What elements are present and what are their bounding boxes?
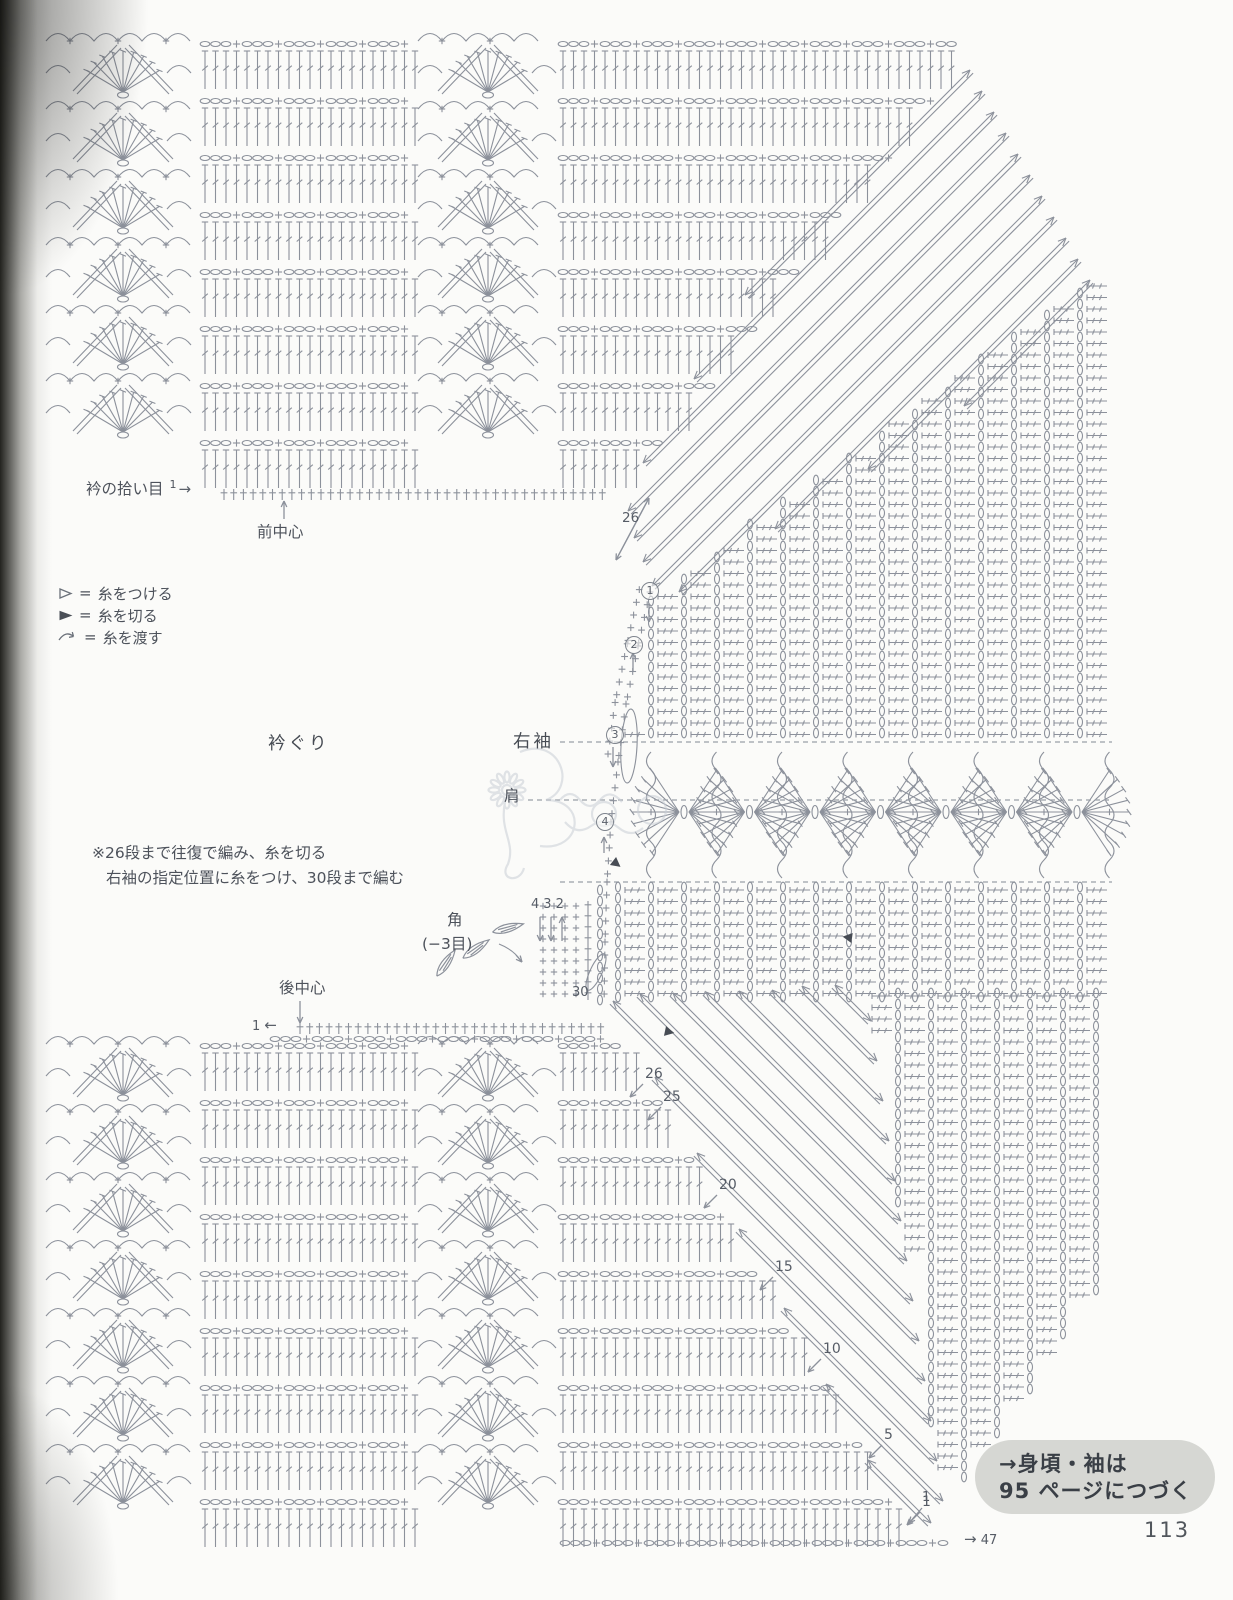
legend: = 糸をつける = 糸を切る = 糸を渡す — [58, 582, 173, 648]
step-row-number: 25 — [663, 1089, 681, 1105]
carry-yarn-icon — [58, 630, 78, 644]
equals-sign: = — [79, 606, 92, 624]
collar-pickup-text: 衿の拾い目 — [86, 480, 164, 498]
front-center-label: 前中心 — [257, 520, 304, 542]
step-row-number: 20 — [719, 1177, 737, 1193]
back-center-label: 後中心 — [279, 976, 326, 998]
step-row-number: 10 — [823, 1341, 841, 1357]
step-row-number: 15 — [775, 1259, 793, 1275]
continuation-line-2: 95 ページにつづく — [999, 1478, 1215, 1505]
circled-step-4: 4 — [596, 813, 614, 831]
legend-item-cut-yarn: = 糸を切る — [58, 604, 173, 626]
shoulder-label: 肩 — [504, 784, 520, 806]
circled-step-2: 2 — [625, 636, 643, 654]
crochet-chart-diagram — [0, 0, 1233, 1600]
note-line-2: 右袖の指定位置に糸をつけ、30段まで編む — [106, 866, 404, 888]
left-arrow-icon: ← — [264, 1016, 277, 1034]
back-center-row-marker: 1 ← — [252, 1016, 277, 1034]
watermark-logo — [489, 749, 667, 879]
right-arrow-icon: → — [964, 1530, 977, 1548]
circled-step-1: 1 — [641, 582, 659, 600]
right-arrow-icon: → — [179, 480, 192, 498]
bottom-stitch-count: → 47 — [964, 1530, 997, 1548]
corner-arrow-digits: 432 — [531, 897, 568, 912]
scanned-page: 衿の拾い目1→ 前中心 = 糸をつける = 糸を切る = 糸を渡す 衿ぐり 右袖… — [0, 0, 1233, 1600]
equals-sign: = — [79, 584, 92, 602]
collar-pickup-label: 衿の拾い目1→ — [86, 477, 191, 499]
legend-label: 糸を渡す — [103, 627, 163, 648]
collar-pickup-row-number: 1 — [170, 478, 177, 491]
right-sleeve-label: 右袖 — [513, 728, 554, 753]
step-row-number: 1 — [922, 1494, 931, 1510]
cut-yarn-icon — [58, 609, 73, 622]
step-row-number: 26 — [645, 1066, 663, 1082]
equals-sign: = — [84, 628, 97, 646]
corner-label: 角 — [447, 908, 463, 930]
legend-item-carry-yarn: = 糸を渡す — [58, 626, 173, 648]
continuation-line-1: →身頃・袖は — [999, 1451, 1215, 1478]
neck-row-26: 26 — [622, 510, 639, 526]
corner-sub-label: (−3目) — [422, 932, 472, 954]
continuation-note: →身頃・袖は 95 ページにつづく — [975, 1440, 1215, 1514]
legend-label: 糸を切る — [98, 605, 158, 626]
sleeve-row-30: 30 — [572, 985, 589, 1000]
note-line-1: ※26段まで往復で編み、糸を切る — [92, 841, 326, 863]
legend-label: 糸をつける — [98, 583, 173, 604]
legend-item-attach-yarn: = 糸をつける — [58, 582, 173, 604]
step-row-number: 5 — [884, 1427, 893, 1443]
neckline-label: 衿ぐり — [268, 730, 330, 755]
page-number: 113 — [1144, 1518, 1190, 1542]
circled-step-3: 3 — [606, 726, 624, 744]
attach-yarn-icon — [58, 587, 73, 600]
